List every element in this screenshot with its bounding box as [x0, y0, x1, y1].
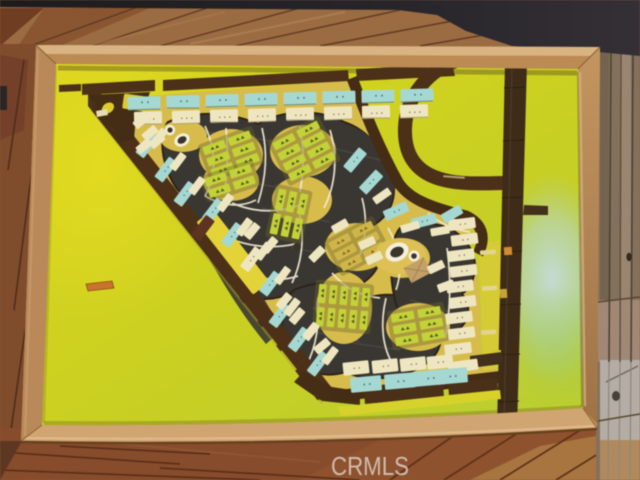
svg-text:CRMLS: CRMLS [331, 451, 409, 480]
